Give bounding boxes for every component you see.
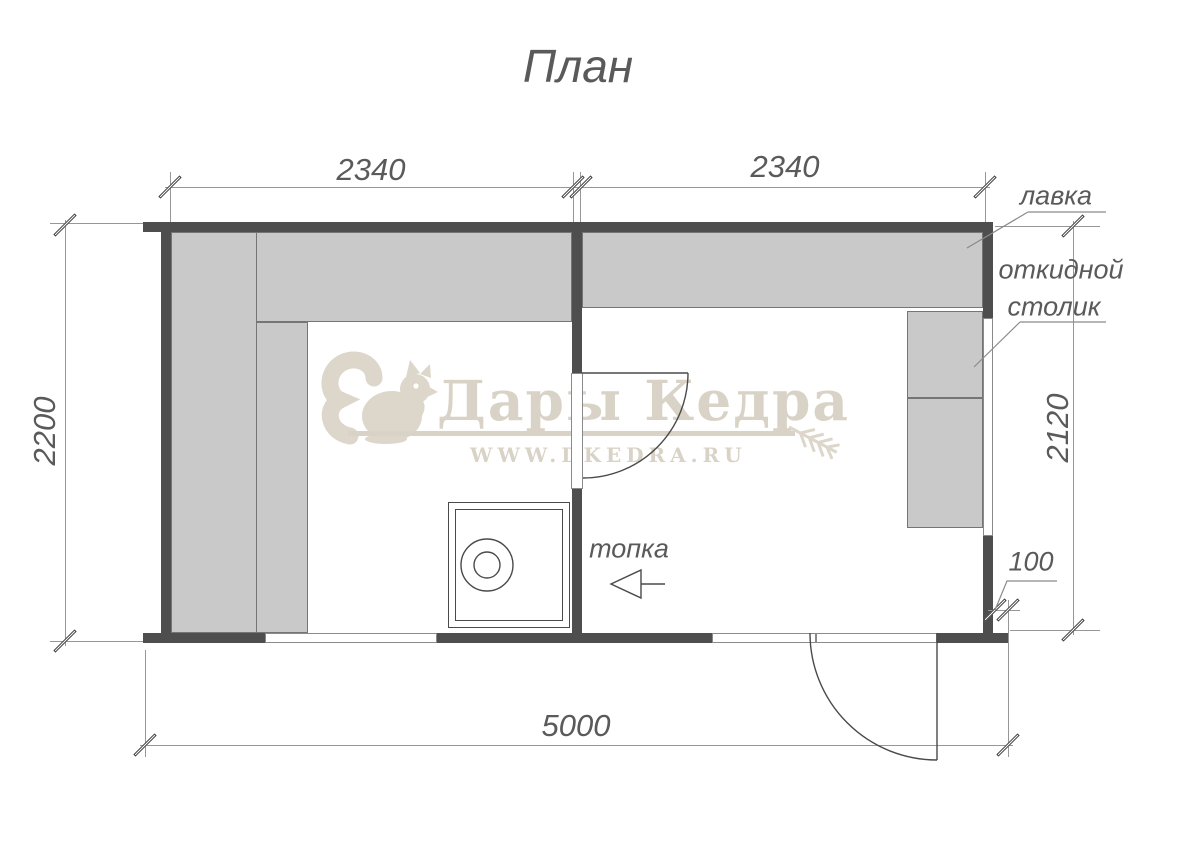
door-partition-swing <box>582 373 688 478</box>
dimension-left: 2200 <box>27 397 63 466</box>
dimension-top-right: 2340 <box>751 149 820 185</box>
dimension-top-left: 2340 <box>337 152 406 188</box>
dimension-offset: 100 <box>1008 547 1053 578</box>
firebox-arrow-icon <box>611 570 665 598</box>
label-bench: лавка <box>1020 181 1092 212</box>
floor-plan-drawing: План Дары Кедра WWW.DKEDRA.RU <box>0 0 1200 848</box>
label-folding-table-line1: откидной <box>998 255 1123 286</box>
label-firebox: топка <box>589 534 669 565</box>
stove-burner-icon <box>461 539 513 591</box>
dimension-total: 5000 <box>542 708 611 744</box>
door-entrance-swing <box>810 633 937 760</box>
label-folding-table-line2: столик <box>1007 292 1100 323</box>
dimension-right: 2120 <box>1040 394 1076 463</box>
